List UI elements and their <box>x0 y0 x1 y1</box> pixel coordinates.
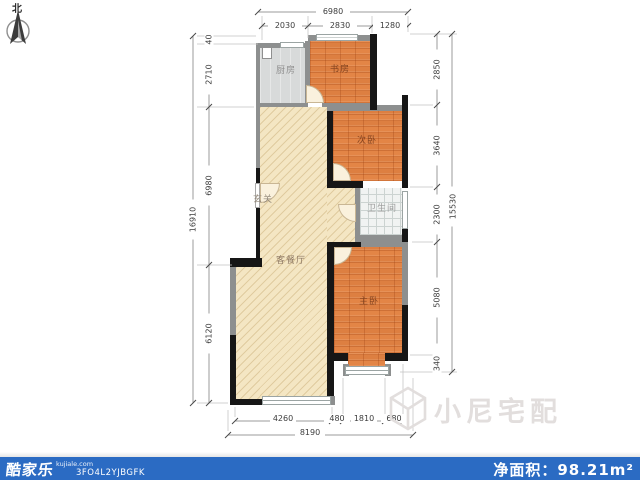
room-label-bathroom: 卫生间 <box>357 204 407 214</box>
room-label-living: 客餐厅 <box>266 256 316 266</box>
dim-bottom-seg: 4260 <box>270 414 296 423</box>
brand-logo: 酷家乐 <box>5 459 55 480</box>
dim-right-seg: 5080 <box>433 278 442 318</box>
watermark: 小尼宅配 <box>388 384 588 432</box>
dim-left-total: 16910 <box>189 200 198 240</box>
dim-right-seg: 340 <box>433 344 442 384</box>
dim-bottom-seg: 480 <box>324 414 350 423</box>
dim-bottom-total: 8190 <box>295 428 325 437</box>
dim-bottom-seg: 1810 <box>351 414 377 423</box>
dim-left-seg: 6980 <box>205 166 214 206</box>
dim-top-total: 6980 <box>316 7 350 16</box>
room-label-study: 书房 <box>320 65 360 75</box>
dim-top-seg: 2030 <box>268 21 302 30</box>
dim-left-seg: 6120 <box>205 314 214 354</box>
room-label-bedroom2: 次卧 <box>347 136 387 146</box>
dim-right-total: 15530 <box>449 187 458 227</box>
floor-plan-page: 北 <box>0 0 640 480</box>
room-label-master: 主卧 <box>349 297 389 307</box>
room-label-entry: 玄关 <box>243 195 283 205</box>
dim-right-seg: 2850 <box>433 50 442 90</box>
brand-domain: kujiale.com <box>56 460 93 468</box>
net-area-value: 净面积：98.21m² <box>493 459 634 480</box>
plan-code: 3FO4L2YJBGFK <box>76 468 145 478</box>
cube-icon <box>388 386 428 432</box>
dim-left-seg: 2710 <box>205 55 214 95</box>
dim-top-seg: 2830 <box>323 21 357 30</box>
watermark-text: 小尼宅配 <box>434 390 562 429</box>
footer-bar: 酷家乐 kujiale.com 3FO4L2YJBGFK 净面积：98.21m² <box>0 457 640 480</box>
dim-right-seg: 2300 <box>433 195 442 235</box>
room-label-kitchen: 厨房 <box>266 66 306 76</box>
dim-right-seg: 3640 <box>433 126 442 166</box>
dim-top-seg: 1280 <box>373 21 407 30</box>
dim-left-seg: 40 <box>205 20 214 60</box>
